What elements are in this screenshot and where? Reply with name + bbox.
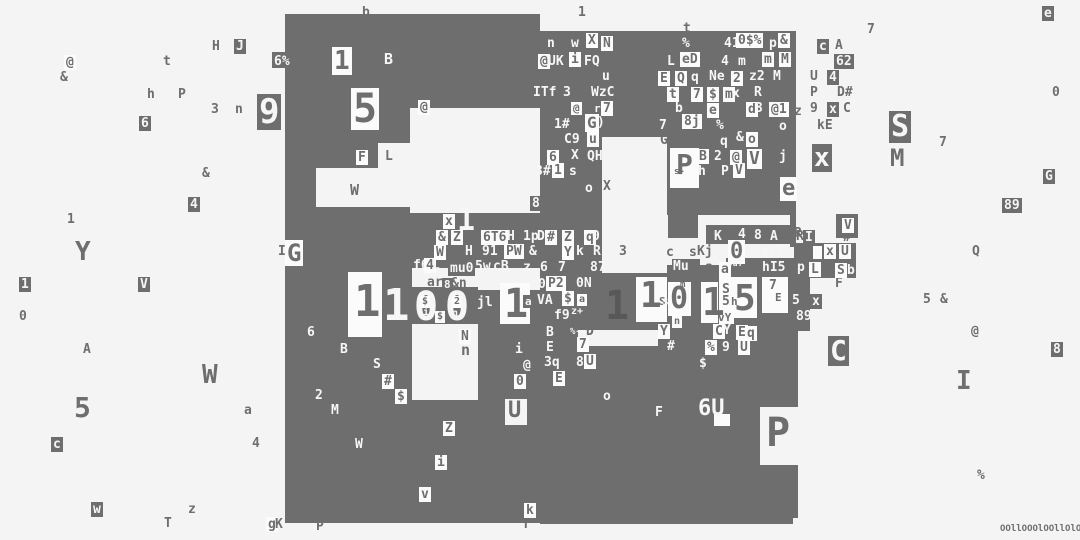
barcode-glyphs: OOllOOOlOOllOlOO xyxy=(1000,525,1080,534)
glyph: E xyxy=(658,71,670,86)
glyph: h xyxy=(698,165,706,178)
glyph: M xyxy=(331,404,339,417)
glyph: M xyxy=(890,146,904,170)
glyph: H xyxy=(507,230,515,243)
glyph: @ xyxy=(971,325,979,338)
glyph: 2 xyxy=(452,296,462,308)
glyph: -= xyxy=(666,133,678,143)
glyph: $ xyxy=(707,87,719,102)
glyph: C9 xyxy=(564,133,580,146)
glyph: k xyxy=(524,503,536,518)
glyph: p xyxy=(795,260,807,275)
glyph: W xyxy=(350,183,359,198)
glyph: o xyxy=(779,120,787,133)
glyph: 62 xyxy=(834,54,854,69)
glyph: Ne xyxy=(709,70,725,83)
glyph: UK xyxy=(548,55,564,68)
glyph: I xyxy=(956,368,972,394)
glyph: V xyxy=(138,277,150,292)
glyph: b xyxy=(847,264,855,277)
glyph: 1 xyxy=(552,163,564,178)
glyph: & xyxy=(736,131,744,144)
glyph: U xyxy=(839,244,851,259)
glyph: 7 xyxy=(577,337,589,352)
glyph: F xyxy=(356,150,368,165)
glyph: L xyxy=(667,55,675,68)
glyph: c xyxy=(51,437,63,452)
glyph: ) xyxy=(597,116,605,129)
glyph: PW xyxy=(504,244,524,259)
glyph: a xyxy=(244,404,252,417)
glyph: M xyxy=(773,70,781,83)
glyph: P xyxy=(316,520,324,533)
glyph: s xyxy=(689,246,697,259)
glyph: 8j xyxy=(682,114,702,129)
glyph: T xyxy=(164,517,172,530)
glyph: X xyxy=(603,180,611,193)
glyph: o xyxy=(746,132,758,147)
glyph: S xyxy=(835,263,847,278)
glyph: 0 xyxy=(514,374,526,389)
glyph: o xyxy=(603,390,611,403)
glyph: 3 xyxy=(619,245,627,258)
glyph: 0 xyxy=(19,310,27,323)
glyph: s xyxy=(569,165,577,178)
glyph: V xyxy=(747,149,762,169)
glyph: E xyxy=(553,371,565,386)
glyph: Y xyxy=(562,245,574,260)
glyph: 0 xyxy=(538,278,546,291)
glyph: o xyxy=(585,182,593,195)
hole-rect xyxy=(602,137,667,273)
glyph: B xyxy=(697,149,709,164)
glyph: 7 xyxy=(867,23,875,36)
glyph: 6 xyxy=(540,261,548,274)
glyph: q xyxy=(720,135,728,148)
glyph: 4 xyxy=(721,55,729,68)
glyph: -i xyxy=(417,308,429,318)
glyph: 8 xyxy=(1051,342,1063,357)
glyph: eD xyxy=(680,52,700,67)
glyph: P xyxy=(721,165,729,178)
glyph: i xyxy=(515,343,523,356)
glyph: P xyxy=(178,88,186,101)
glyph: Y xyxy=(75,239,91,265)
glyph: H xyxy=(465,245,473,258)
glyph: K xyxy=(714,230,722,243)
glyph: w xyxy=(91,502,103,517)
glyph: 5 xyxy=(923,293,931,306)
glyph: 9 xyxy=(257,94,281,130)
glyph: 3# xyxy=(535,165,551,178)
glyph: 87 xyxy=(590,261,606,274)
glyph: x xyxy=(812,144,832,172)
glyph: % xyxy=(682,37,690,50)
glyph: Y xyxy=(723,324,731,337)
glyph: z xyxy=(794,105,802,118)
glyph: a xyxy=(705,261,713,274)
glyph: vY xyxy=(718,312,731,323)
glyph: mu0 xyxy=(448,261,475,276)
glyph: s- xyxy=(674,168,685,177)
glyph: j xyxy=(779,150,787,163)
glyph: c xyxy=(817,39,829,54)
glyph: 6 xyxy=(139,116,151,131)
glyph: 9 xyxy=(810,102,818,115)
glyph: 1 xyxy=(67,213,75,226)
glyph: 7 xyxy=(601,101,613,116)
glyph: 1 xyxy=(383,284,410,328)
glyph: 3 xyxy=(211,103,219,116)
glyph: J xyxy=(234,39,246,54)
glyph: 6 xyxy=(307,326,315,339)
glyph: p xyxy=(769,37,777,50)
glyph: @ xyxy=(418,100,430,115)
glyph: 8 xyxy=(754,229,762,242)
glyph: m xyxy=(762,52,774,67)
glyph: 6T6 xyxy=(481,230,508,245)
glyph: C xyxy=(828,336,849,366)
glyph: a xyxy=(577,294,587,306)
glyph: 8 xyxy=(530,196,542,211)
glyph: e xyxy=(707,103,719,118)
glyph: Y xyxy=(658,324,670,339)
glyph: # xyxy=(545,230,557,245)
glyph: QH xyxy=(587,150,603,163)
glyph: WzC xyxy=(591,86,614,99)
glyph: cB xyxy=(493,260,509,273)
glyph: n xyxy=(547,37,555,50)
glyph: z2 xyxy=(749,70,765,83)
glyph: 1 xyxy=(578,6,586,19)
glyph: 89 xyxy=(1002,198,1022,213)
glyph: V xyxy=(733,163,745,178)
glyph: t xyxy=(667,87,679,102)
glyph: 4 xyxy=(188,197,200,212)
glyph: N xyxy=(601,36,613,51)
glyph: P xyxy=(810,86,818,99)
glyph: Q xyxy=(675,71,687,86)
glyph: 7 xyxy=(659,119,667,132)
glyph: f9 xyxy=(554,309,570,322)
glyph: & xyxy=(778,33,790,48)
glyph: 0N xyxy=(576,277,592,290)
glyph: su7 xyxy=(727,260,743,269)
glyph: n xyxy=(461,343,470,358)
glyph: K xyxy=(275,518,283,531)
glyph: u xyxy=(602,70,610,83)
glyph: H xyxy=(212,40,220,53)
glyph: % xyxy=(977,469,985,482)
glyph: $ xyxy=(562,291,574,306)
glyph: P2 xyxy=(546,276,566,291)
glyph: 1# xyxy=(554,118,570,131)
glyph: 5 xyxy=(722,295,730,308)
hole-rect xyxy=(316,168,426,207)
glyph: # xyxy=(667,340,675,353)
glyph: n xyxy=(452,309,458,319)
glyph: 1 xyxy=(19,277,31,292)
glyph: c xyxy=(666,246,674,259)
glyph: $ xyxy=(395,389,407,404)
glyph: E xyxy=(773,291,784,304)
glyph: 0 xyxy=(1052,86,1060,99)
glyph: 3 xyxy=(755,102,763,115)
glyph: r xyxy=(523,518,531,531)
glyph: G xyxy=(1043,169,1055,184)
glyph: w xyxy=(571,37,579,50)
glyph: @ xyxy=(523,359,531,372)
glyph: x xyxy=(810,294,822,309)
hole-rect xyxy=(813,246,822,259)
hole-rect xyxy=(410,108,540,213)
glyph: 3q xyxy=(544,356,560,369)
glyph: 4 xyxy=(252,437,260,450)
glyph: S xyxy=(889,111,911,143)
glyph: 5 xyxy=(74,394,91,422)
glyph: 2 xyxy=(731,71,743,86)
glyph: Q xyxy=(972,245,980,258)
glyph: W xyxy=(355,438,363,451)
glyph: L xyxy=(432,259,440,272)
glyph: e xyxy=(780,177,797,201)
glyph-field-canvas: @&tHJhP3n69&41Y1V0AW5ac4wzTb1t7ecA62U4PD… xyxy=(0,0,1080,540)
glyph: 1 xyxy=(332,47,352,75)
glyph: 4 xyxy=(827,70,839,85)
glyph: h xyxy=(147,88,155,101)
glyph: oVT xyxy=(761,245,784,258)
glyph: n xyxy=(672,316,682,328)
glyph: L xyxy=(809,262,821,277)
glyph: $ xyxy=(662,296,669,307)
glyph: % xyxy=(705,340,717,355)
glyph: i xyxy=(435,455,447,470)
glyph: m xyxy=(738,55,746,68)
glyph: # xyxy=(382,374,394,389)
glyph: B xyxy=(340,343,348,356)
glyph: & xyxy=(940,293,948,306)
glyph: $ xyxy=(699,357,707,370)
glyph: 1 xyxy=(354,280,381,324)
glyph: X xyxy=(571,149,579,162)
glyph: i xyxy=(569,52,581,67)
glyph: R xyxy=(794,227,802,240)
glyph: 1 xyxy=(605,286,629,326)
glyph: m xyxy=(680,281,685,290)
glyph: 7 xyxy=(558,261,566,274)
glyph: hI5 xyxy=(762,261,785,274)
glyph: 91 xyxy=(482,245,498,258)
glyph: & xyxy=(529,245,537,258)
glyph: U xyxy=(508,400,521,422)
glyph: U xyxy=(738,340,750,355)
glyph: x xyxy=(443,214,455,229)
glyph: g7s xyxy=(762,313,782,324)
glyph: 2 xyxy=(315,389,323,402)
glyph: e xyxy=(1042,6,1054,21)
glyph: % xyxy=(716,119,724,132)
glyph: 7 xyxy=(939,136,947,149)
glyph: G xyxy=(285,240,303,266)
glyph: C xyxy=(843,102,851,115)
glyph: A xyxy=(770,230,778,243)
glyph: U xyxy=(584,354,596,369)
glyph: R xyxy=(593,245,601,258)
glyph: 5 xyxy=(351,88,379,130)
glyph: VA xyxy=(537,294,553,307)
glyph: V xyxy=(842,218,854,233)
glyph: 5w xyxy=(475,260,491,273)
glyph: $ xyxy=(435,311,445,323)
glyph: L xyxy=(385,150,393,163)
glyph: q xyxy=(691,71,699,84)
glyph: & xyxy=(60,71,68,84)
glyph: M xyxy=(779,52,791,67)
glyph: a xyxy=(523,295,534,308)
glyph: R xyxy=(754,86,762,99)
glyph: x xyxy=(732,87,740,100)
glyph: 0 xyxy=(592,230,600,243)
glyph: I xyxy=(803,230,815,245)
glyph: n xyxy=(235,103,243,116)
glyph: 89 xyxy=(796,310,812,323)
glyph: jl xyxy=(477,296,493,309)
glyph: FQ xyxy=(584,55,600,68)
glyph: @ xyxy=(571,102,582,115)
glyph: Z xyxy=(443,421,455,436)
glyph: D xyxy=(537,230,545,243)
glyph: U xyxy=(810,70,818,83)
glyph: Z xyxy=(451,230,463,245)
glyph: A xyxy=(835,39,843,52)
glyph: W xyxy=(202,362,218,388)
glyph: 9 xyxy=(722,341,730,354)
glyph: v xyxy=(419,487,431,502)
glyph: 6% xyxy=(274,55,290,68)
glyph: 5 xyxy=(792,294,800,307)
glyph: h xyxy=(731,296,738,307)
glyph: D# xyxy=(837,86,853,99)
blob-rect xyxy=(668,200,698,238)
glyph: 0$% xyxy=(736,33,763,48)
glyph: X xyxy=(586,33,598,48)
glyph: & xyxy=(202,167,210,180)
glyph: A xyxy=(83,343,91,356)
glyph: P xyxy=(766,413,790,453)
glyph: u xyxy=(587,132,599,147)
glyph: Kj xyxy=(697,245,713,258)
glyph: F xyxy=(655,406,663,419)
glyph: t xyxy=(163,55,171,68)
glyph: 8 xyxy=(576,356,584,369)
glyph: & xyxy=(436,230,448,245)
glyph: t xyxy=(683,22,691,35)
glyph: q xyxy=(745,326,757,341)
glyph: %- xyxy=(570,328,581,337)
glyph: E xyxy=(546,341,554,354)
glyph: 3 xyxy=(563,86,571,99)
glyph: B xyxy=(384,52,393,67)
glyph: @1 xyxy=(769,102,789,117)
glyph: z xyxy=(523,261,531,274)
glyph: F xyxy=(835,277,843,290)
glyph: kE xyxy=(817,119,833,132)
glyph: 6U xyxy=(698,398,725,420)
glyph: x xyxy=(827,102,839,117)
glyph: 2 xyxy=(714,150,722,163)
glyph: ITf xyxy=(533,86,556,99)
glyph: @ xyxy=(64,55,76,70)
glyph: z+ xyxy=(571,307,583,317)
glyph: Z xyxy=(562,230,574,245)
glyph: z xyxy=(188,503,196,516)
glyph: B xyxy=(546,326,554,339)
glyph: Mu xyxy=(673,260,689,273)
glyph: k xyxy=(576,245,584,258)
glyph: x xyxy=(824,244,836,259)
glyph: S xyxy=(373,358,381,371)
hole-rect xyxy=(793,518,810,540)
glyph: 7 xyxy=(691,87,703,102)
glyph: b xyxy=(362,6,370,19)
